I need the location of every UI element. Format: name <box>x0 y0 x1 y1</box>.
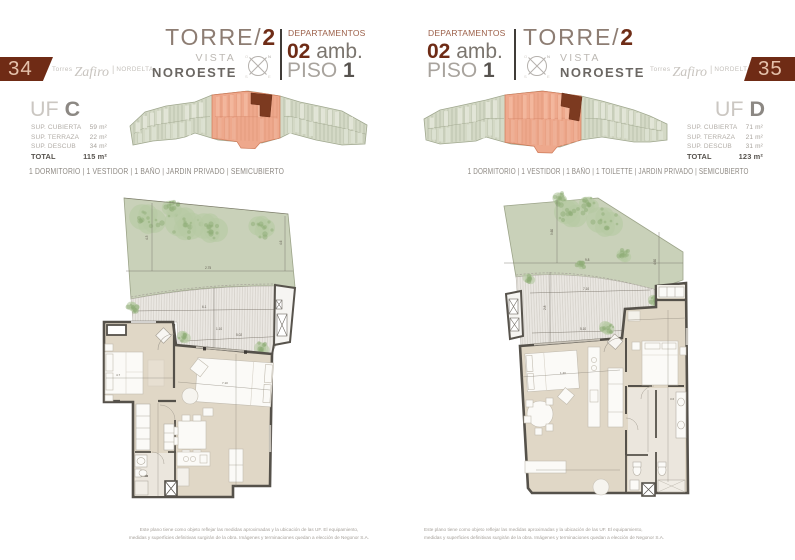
svg-text:S: S <box>524 74 527 79</box>
svg-text:9.8: 9.8 <box>585 258 590 262</box>
svg-text:N: N <box>547 54 550 59</box>
svg-text:S: S <box>245 74 248 79</box>
svg-text:2.75: 2.75 <box>205 266 211 270</box>
svg-text:6.1: 6.1 <box>202 305 207 309</box>
svg-text:1.40: 1.40 <box>560 371 566 375</box>
svg-text:4.3: 4.3 <box>145 235 149 240</box>
svg-text:O: O <box>524 54 527 59</box>
svg-text:3.6: 3.6 <box>670 397 675 401</box>
svg-text:5.10: 5.10 <box>580 327 586 331</box>
svg-text:4.60: 4.60 <box>653 259 657 265</box>
svg-text:E: E <box>547 74 550 79</box>
svg-text:7.10: 7.10 <box>583 287 589 291</box>
svg-text:E: E <box>268 74 271 79</box>
svg-text:N: N <box>268 54 271 59</box>
svg-text:4.6: 4.6 <box>279 240 283 245</box>
svg-text:5.02: 5.02 <box>236 333 242 337</box>
svg-text:O: O <box>245 54 248 59</box>
svg-text:4.7: 4.7 <box>116 373 121 377</box>
svg-text:7.10: 7.10 <box>222 381 228 385</box>
svg-text:9.60: 9.60 <box>550 229 554 235</box>
svg-text:1.10: 1.10 <box>216 327 222 331</box>
svg-text:2.8: 2.8 <box>543 305 547 310</box>
